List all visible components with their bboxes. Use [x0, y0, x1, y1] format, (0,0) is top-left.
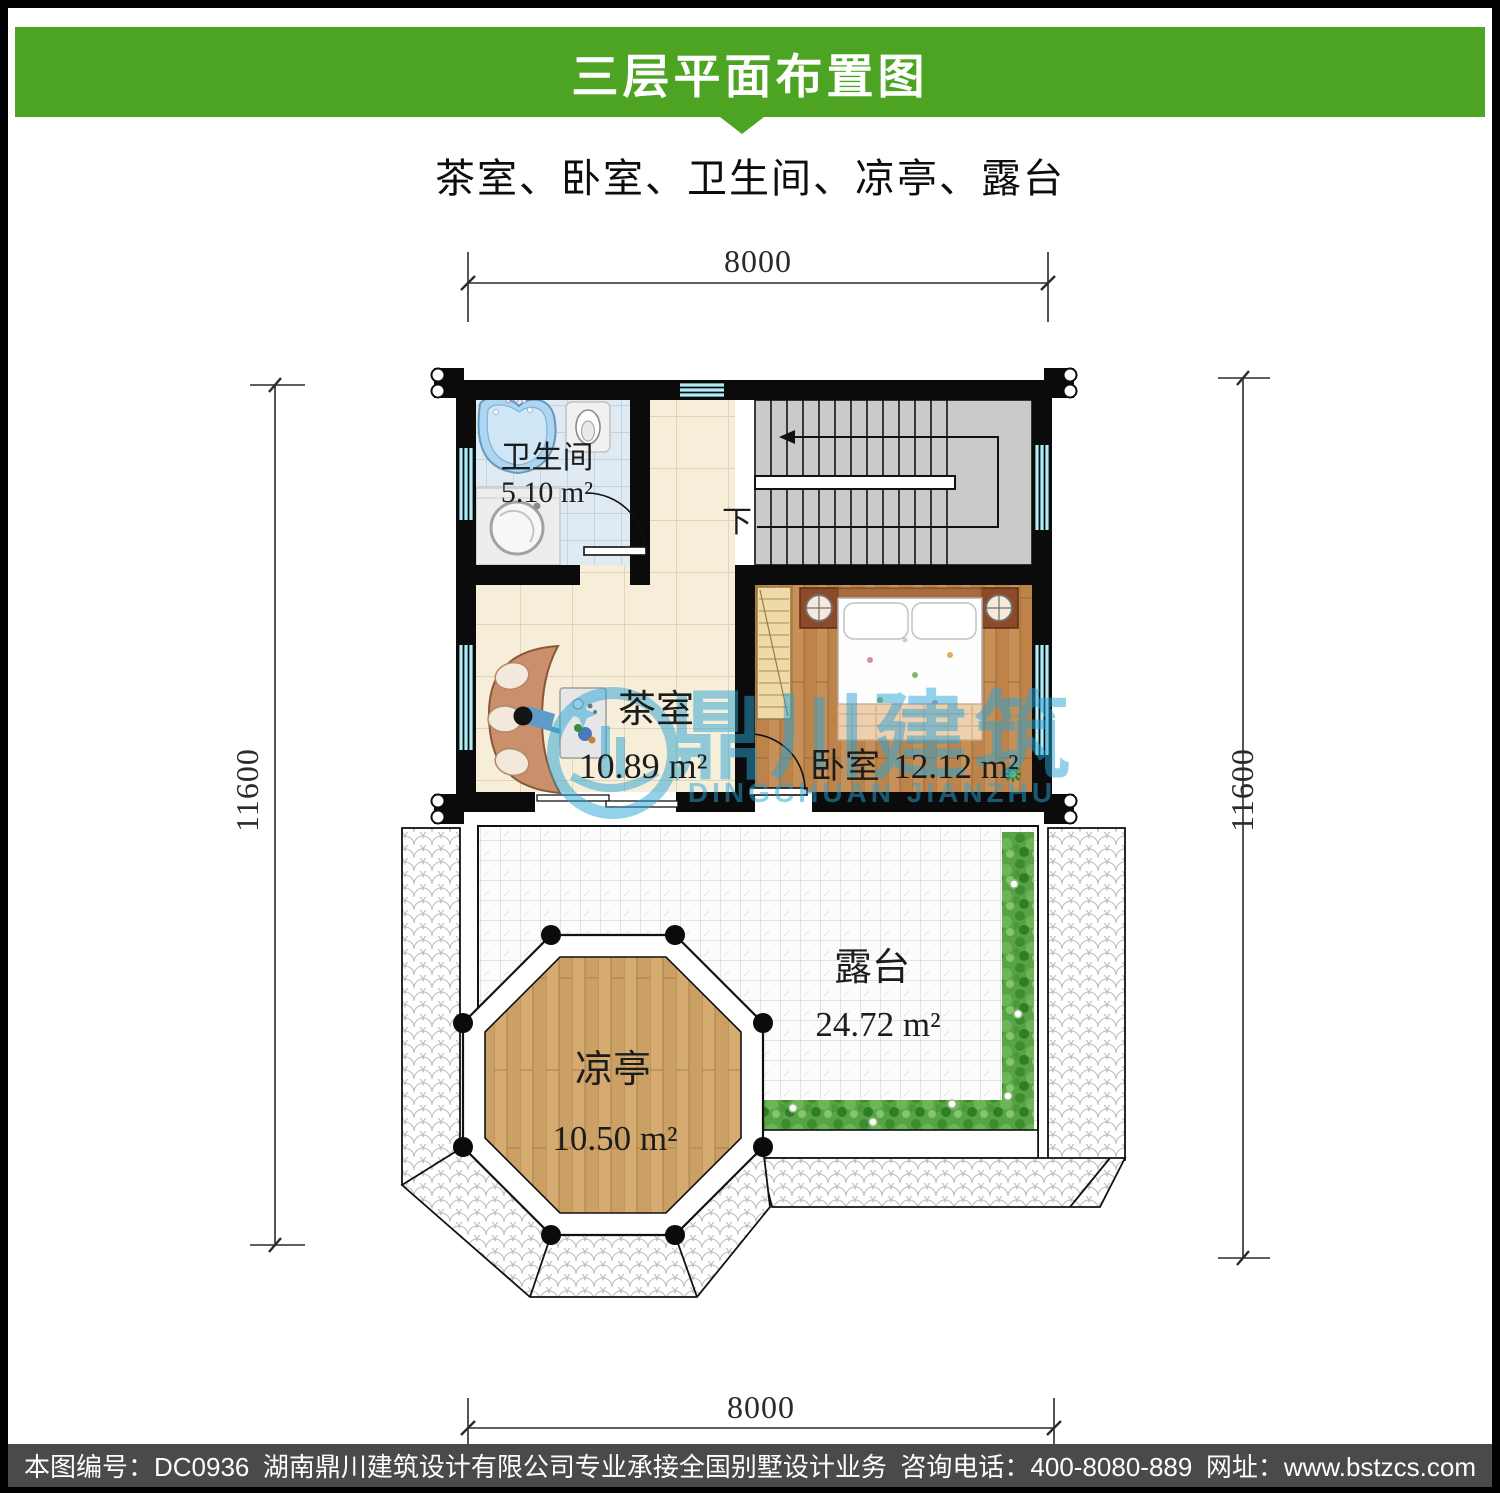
poster-canvas: 三层平面布置图 茶室、卧室、卫生间、凉亭、露台 — [0, 0, 1500, 1493]
window-right-stairs — [1037, 445, 1047, 530]
footer-phone: 咨询电话：400-8080-889 — [900, 1447, 1192, 1484]
pavilion-name-label: 凉亭 — [575, 1049, 651, 1091]
nightstand-right — [980, 588, 1018, 628]
bathroom-area-label: 5.10 m² — [501, 476, 593, 509]
floor-plan-svg: 鼎川建筑 DINGCHUAN JIANZHU 卫生间 5.10 m² 下 茶室 … — [0, 0, 1500, 1493]
footer-bar: 本图编号：DC0936 湖南鼎川建筑设计有限公司专业承接全国别墅设计业务 咨询电… — [8, 1444, 1492, 1487]
bedroom-area-label: 12.12 m² — [893, 747, 1018, 786]
stair-handrail — [755, 476, 955, 489]
hedge-bottom — [758, 1100, 1034, 1132]
hall-floor — [650, 400, 735, 585]
footer-website: 网址：www.bstzcs.com — [1206, 1447, 1476, 1484]
wall-bedroom-top — [735, 565, 1052, 585]
pavilion-area-label: 10.50 m² — [552, 1119, 677, 1158]
terrace-area-label: 24.72 m² — [815, 1005, 940, 1044]
window-left-bathroom — [461, 448, 471, 520]
tea-room-area-label: 10.89 m² — [579, 746, 708, 786]
wall-bottom-1 — [456, 792, 535, 812]
wall-bathroom-bottom — [456, 565, 580, 585]
window-left-tea-room — [461, 645, 471, 750]
dim-right-label: 11600 — [1224, 748, 1260, 832]
roof-strip-bottom — [760, 1158, 1125, 1207]
roof-strip-left — [402, 828, 460, 1185]
bedroom-name-label: 卧室 — [810, 747, 880, 786]
bath-door-opening-floor — [580, 565, 630, 585]
nightstand-left — [800, 588, 838, 628]
dim-top-label: 8000 — [724, 243, 792, 279]
paper-background: 三层平面布置图 茶室、卧室、卫生间、凉亭、露台 — [8, 8, 1492, 1487]
footer-company: 湖南鼎川建筑设计有限公司专业承接全国别墅设计业务 — [263, 1447, 887, 1484]
terrace-name-label: 露台 — [834, 947, 910, 989]
bathroom-name-label: 卫生间 — [501, 440, 594, 475]
footer-drawing-number: 本图编号：DC0936 — [24, 1447, 249, 1484]
hedge-right — [1002, 832, 1034, 1132]
dim-left-label: 11600 — [229, 748, 265, 832]
wall-top — [456, 380, 1052, 400]
dim-bottom-label: 8000 — [727, 1389, 795, 1425]
roof-strip-right — [1048, 828, 1125, 1160]
window-top-hall — [680, 385, 724, 395]
stairs-down-label: 下 — [722, 506, 752, 539]
tea-room-name-label: 茶室 — [618, 689, 694, 731]
